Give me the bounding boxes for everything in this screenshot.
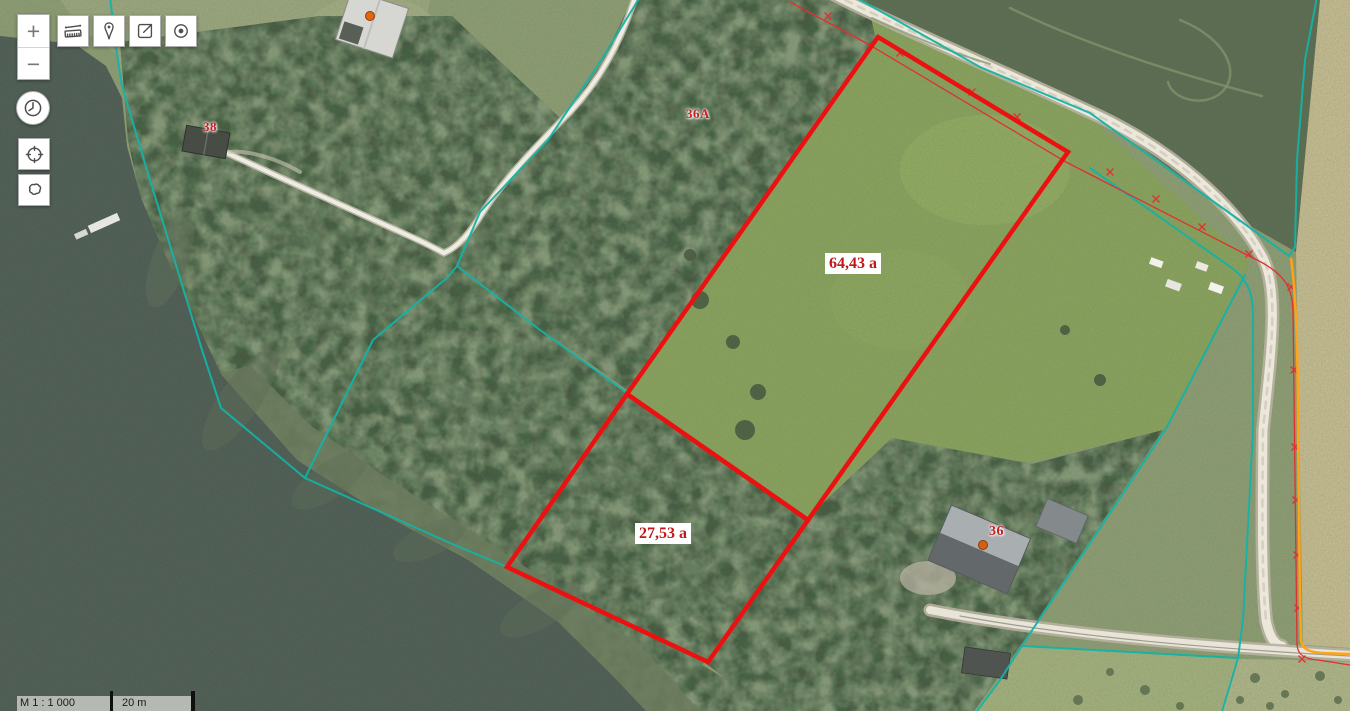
parcel-number-36: 36: [989, 524, 1004, 540]
share-icon: [134, 20, 156, 42]
marker-dot-36: [979, 541, 988, 550]
ruler-icon: [62, 20, 84, 42]
marker-dot-top: [366, 12, 375, 21]
clock-icon: [21, 96, 45, 120]
scale-distance: 20 m: [113, 696, 191, 711]
area-label-big-parcel: 64,43 a: [825, 253, 881, 274]
parcel-number-36a: 36A: [686, 106, 710, 122]
crosshair-button[interactable]: [18, 138, 50, 170]
zoom-control: + −: [17, 14, 50, 80]
marker-button[interactable]: [93, 15, 125, 47]
target-icon: [170, 20, 192, 42]
marker-icon: [98, 20, 120, 42]
share-button[interactable]: [129, 15, 161, 47]
polygon-select-button[interactable]: [18, 174, 50, 206]
locate-point-button[interactable]: [165, 15, 197, 47]
history-button[interactable]: [16, 91, 50, 125]
zoom-in-button[interactable]: +: [18, 15, 49, 48]
parcel-number-38: 38: [203, 119, 217, 135]
scale-tick-right: [191, 691, 195, 711]
terrain: [0, 0, 1350, 711]
satellite-map[interactable]: [0, 0, 1350, 711]
plus-icon: +: [27, 18, 40, 45]
scale-ratio: M 1 : 1 000: [17, 696, 110, 711]
zoom-out-button[interactable]: −: [18, 48, 49, 81]
minus-icon: −: [27, 51, 40, 78]
polygon-icon: [23, 179, 46, 202]
measure-button[interactable]: [57, 15, 89, 47]
map-application: 38 36A 36 64,43 a 27,53 a + −: [0, 0, 1350, 711]
area-label-small-parcel: 27,53 a: [635, 523, 691, 544]
crosshair-icon: [23, 143, 46, 166]
